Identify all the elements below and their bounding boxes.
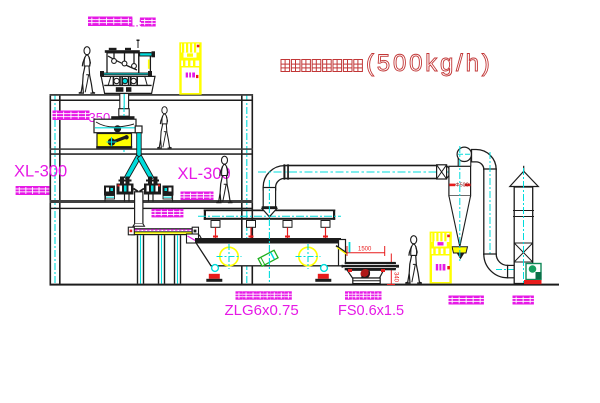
svg-text:ZLG6x0.75: ZLG6x0.75 bbox=[225, 302, 299, 319]
svg-text:FS0.6x1.5: FS0.6x1.5 bbox=[338, 303, 404, 319]
svg-text:(500kg/h): (500kg/h) bbox=[366, 50, 493, 77]
svg-text:1500: 1500 bbox=[358, 247, 372, 253]
svg-text:340: 340 bbox=[393, 272, 399, 283]
svg-text:XL-300: XL-300 bbox=[14, 163, 67, 181]
svg-text:Φ500: Φ500 bbox=[455, 183, 469, 189]
